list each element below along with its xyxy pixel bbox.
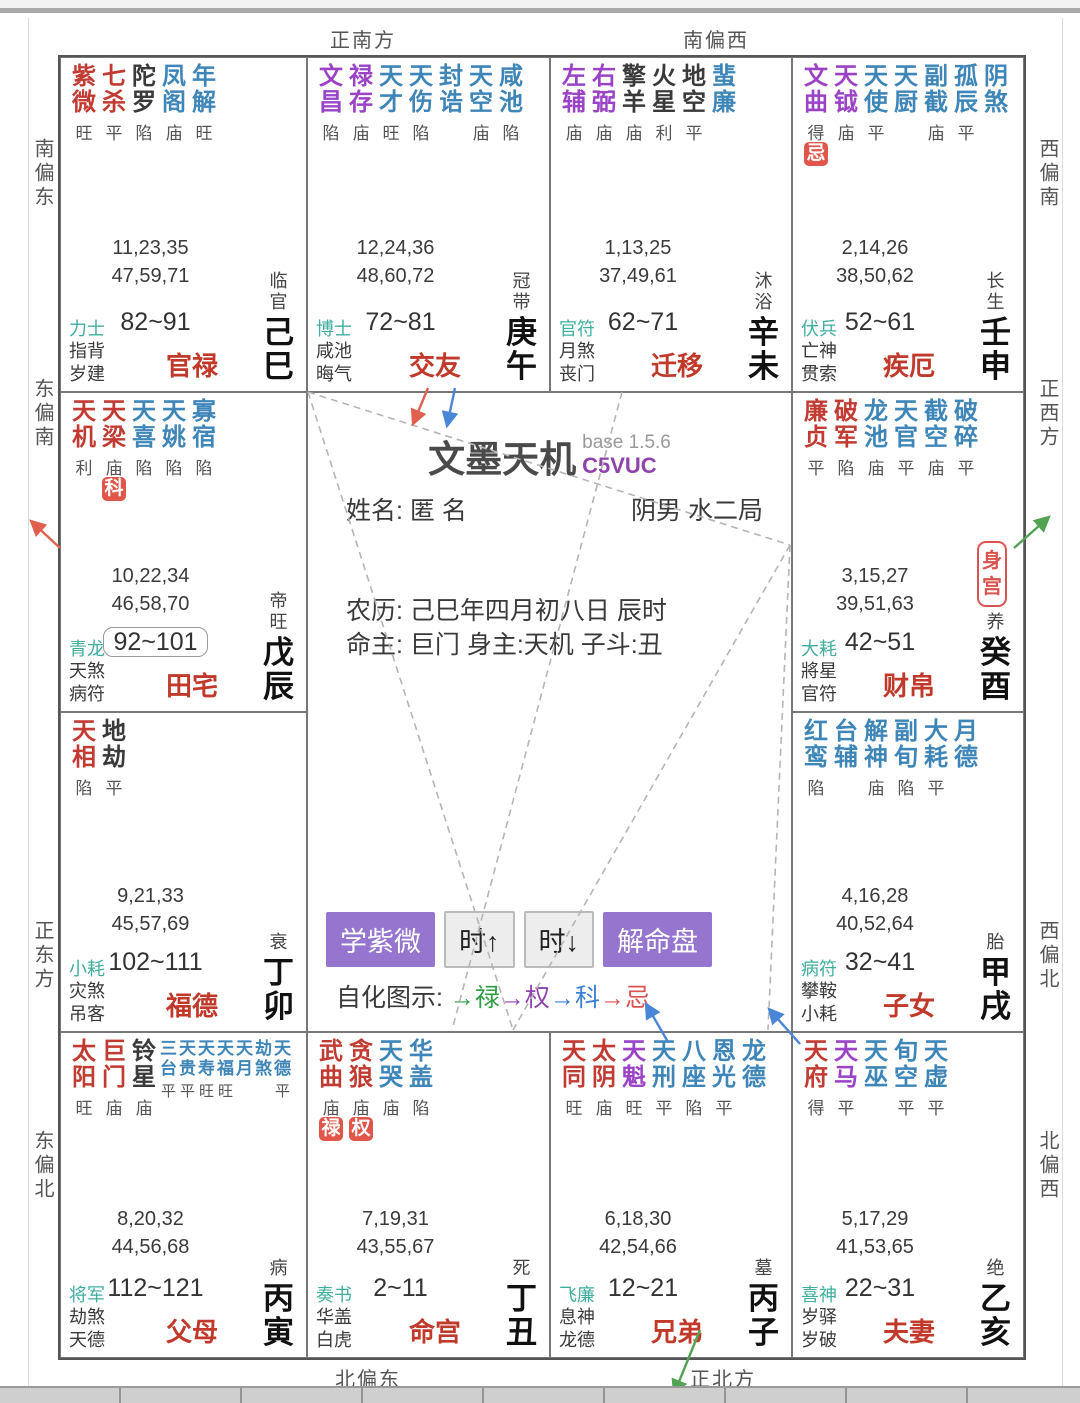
star-char: 廉 [712, 90, 736, 116]
decade-range[interactable]: 102~111 [91, 948, 220, 977]
star-list: 武曲庙禄贪狼庙权天哭庙华盖陷 [316, 1039, 436, 1141]
star-char: 红 [804, 719, 828, 745]
interpret-chart-button[interactable]: 解命盘 [603, 912, 712, 967]
star: 天姚陷 [159, 399, 189, 474]
star: 文昌陷 [316, 64, 346, 139]
star-brightness: 旺 [383, 119, 400, 139]
stem-branch: 丁卯 [263, 956, 294, 1025]
star-char: 天 [864, 1039, 888, 1065]
decade-range[interactable]: 112~121 [91, 1274, 220, 1303]
star-brightness [994, 119, 999, 139]
star-list: 天机利天梁庙科天喜陷天姚陷寡宿陷 [69, 399, 219, 501]
palace-guanlu[interactable]: 紫微旺七杀平陀罗陷凤阁庙年解旺11,23,3547,59,71力士指背岁建82~… [60, 57, 307, 392]
star-brightness: 利 [656, 119, 673, 139]
jiangqian-label: 亡神 [801, 340, 837, 363]
app-title: 文墨天机 [428, 439, 576, 480]
legend-ji: 忌 [625, 984, 650, 1012]
star-char: 天 [469, 64, 493, 90]
star-list: 廉贞平破军陷龙池庙天官平截空庙破碎平 [801, 399, 981, 474]
palace-zinv[interactable]: 红鸾陷台辅 解神庙副旬陷大耗平月德 4,16,2840,52,64病符攀鞍小耗3… [792, 712, 1024, 1032]
stage-branch: 养癸酉 [980, 612, 1011, 705]
star: 截空庙 [921, 399, 951, 474]
star-char: 机 [72, 425, 96, 451]
decade-range[interactable]: 2~11 [338, 1274, 463, 1303]
star-char: 武 [319, 1039, 343, 1065]
stem-branch: 丁丑 [506, 1282, 537, 1351]
star: 太阴庙 [589, 1039, 619, 1114]
star-char: 廉 [804, 399, 828, 425]
star-brightness: 平 [656, 1094, 673, 1114]
jiangqian-label: 天煞 [69, 660, 105, 683]
star-char: 德 [954, 745, 978, 771]
stage-branch: 绝乙亥 [980, 1258, 1011, 1351]
star-list: 红鸾陷台辅 解神庙副旬陷大耗平月德 [801, 719, 981, 794]
star-char: 天 [924, 1039, 948, 1065]
palace-qianyi[interactable]: 左辅庙右弼庙擎羊庙火星利地空平蜚廉 1,13,2537,49,61官符月煞丧门6… [550, 57, 792, 392]
gender-bureau: 阴男 水二局 [631, 491, 763, 527]
star-list: 文昌陷禄存庙天才旺天伤陷封诰 天空庙咸池陷 [316, 64, 526, 139]
star-brightness: 旺 [76, 1094, 93, 1114]
star-brightness: 平 [686, 119, 703, 139]
star: 劫煞 [254, 1039, 273, 1097]
life-stage: 绝 [987, 1258, 1005, 1279]
star-char: 台 [160, 1059, 177, 1079]
decade-range[interactable]: 82~91 [91, 308, 220, 337]
star-brightness: 陷 [166, 454, 183, 474]
star-brightness: 庙 [626, 119, 643, 139]
star-brightness: 旺 [76, 119, 93, 139]
star-char: 星 [132, 1065, 156, 1091]
star: 地空平 [679, 64, 709, 139]
star-list: 左辅庙右弼庙擎羊庙火星利地空平蜚廉 [559, 64, 739, 139]
star-brightness: 庙 [928, 119, 945, 139]
star: 解神庙 [861, 719, 891, 794]
star-char: 星 [652, 90, 676, 116]
stem-branch: 戊辰 [263, 636, 294, 705]
star: 天虚平 [921, 1039, 951, 1114]
star-list: 天同旺太阴庙天魁旺天刑平八座陷恩光平龙德 [559, 1039, 769, 1114]
star-char: 咸 [499, 64, 523, 90]
star-char: 池 [499, 90, 523, 116]
stem-branch: 癸酉 [980, 636, 1011, 705]
star-brightness: 庙 [838, 119, 855, 139]
decade-range[interactable]: 72~81 [338, 308, 463, 337]
star-char: 天 [864, 64, 888, 90]
star-char: 火 [652, 64, 676, 90]
stage-branch: 帝旺戊辰 [263, 591, 294, 705]
star: 太阳旺 [69, 1039, 99, 1114]
life-stage: 衰 [270, 932, 288, 953]
stage-branch: 衰丁卯 [263, 932, 294, 1025]
star-brightness: 庙 [868, 454, 885, 474]
star-char: 天 [804, 1039, 828, 1065]
jiangqian-label: 息神 [559, 1306, 595, 1329]
star-brightness: 陷 [686, 1094, 703, 1114]
star: 寡宿陷 [189, 399, 219, 474]
stage-branch: 长生壬申 [980, 271, 1011, 385]
suiqian-label: 病符 [69, 683, 105, 706]
decade-range[interactable]: 22~31 [823, 1274, 937, 1303]
star-char: 贪 [349, 1039, 373, 1065]
star-char: 昌 [319, 90, 343, 116]
star-char: 德 [274, 1059, 291, 1079]
flow-year-numbers: 5,17,2941,53,65 [793, 1205, 957, 1261]
star: 凤阁庙 [159, 64, 189, 139]
star-brightness: 平 [275, 1080, 290, 1097]
legend-quan: 权 [525, 984, 550, 1012]
star: 擎羊庙 [619, 64, 649, 139]
star-char: 巨 [102, 1039, 126, 1065]
flow-year-numbers: 3,15,2739,51,63 [793, 562, 957, 618]
star-char: 禄 [349, 64, 373, 90]
star-char: 马 [834, 1065, 858, 1091]
star-char: 空 [469, 90, 493, 116]
star: 咸池陷 [496, 64, 526, 139]
star-char: 同 [562, 1065, 586, 1091]
star: 天贵平 [178, 1039, 197, 1097]
star: 三台平 [159, 1039, 178, 1097]
star-char: 地 [682, 64, 706, 90]
star: 红鸾陷 [801, 719, 831, 794]
star-brightness: 庙 [353, 1094, 370, 1114]
star-char: 年 [192, 64, 216, 90]
star-char: 解 [192, 90, 216, 116]
star-brightness: 旺 [196, 119, 213, 139]
star-char: 蜚 [712, 64, 736, 90]
star: 天钺庙 [831, 64, 861, 139]
star-brightness: 庙 [166, 119, 183, 139]
dir-left-3: 正东方 [28, 920, 57, 992]
jiangqian-label: 华盖 [316, 1306, 352, 1329]
star-brightness: 庙 [106, 1094, 123, 1114]
jiangqian-label: 岁驿 [801, 1306, 837, 1329]
star-brightness [752, 1094, 757, 1114]
star-char: 劫 [102, 745, 126, 771]
star-char: 凤 [162, 64, 186, 90]
life-stage: 墓 [755, 1258, 773, 1279]
star-brightness: 陷 [808, 774, 825, 794]
stage-branch: 冠带庚午 [506, 271, 537, 385]
star-char: 光 [712, 1065, 736, 1091]
star: 天机利 [69, 399, 99, 474]
suiqian-label: 贯索 [801, 363, 837, 386]
flow-year-numbers: 9,21,3345,57,69 [61, 882, 240, 938]
life-stage: 养 [987, 612, 1005, 633]
star-char: 天 [834, 1039, 858, 1065]
star-char: 阴 [984, 64, 1008, 90]
stage-branch: 墓丙子 [748, 1258, 779, 1351]
life-stage: 临官 [270, 271, 288, 312]
star-list: 天府得天马平天巫 旬空平天虚平 [801, 1039, 951, 1114]
star-brightness: 陷 [136, 454, 153, 474]
suiqian-label: 岁破 [801, 1329, 837, 1352]
star-char: 旬 [894, 1039, 918, 1065]
stage-branch: 病丙寅 [263, 1258, 294, 1351]
star-brightness: 庙 [383, 1094, 400, 1114]
star-brightness: 平 [161, 1080, 176, 1097]
palace-caibo[interactable]: 廉贞平破军陷龙池庙天官平截空庙破碎平3,15,2739,51,63大耗將星官符4… [792, 392, 1024, 712]
legend-arrow-ke: → [550, 984, 575, 1012]
star-char: 厨 [894, 90, 918, 116]
star: 左辅庙 [559, 64, 589, 139]
star: 副截庙 [921, 64, 951, 139]
star-brightness: 庙 [136, 1094, 153, 1114]
palace-name: 福德 [166, 986, 218, 1023]
star-brightness: 陷 [413, 1094, 430, 1114]
palace-fumu[interactable]: 太阳旺巨门庙铃星庙三台平天贵平天寿旺天福旺天月 劫煞 天德平8,20,3244,… [60, 1032, 307, 1358]
palace-tianzhai[interactable]: 天机利天梁庙科天喜陷天姚陷寡宿陷10,22,3446,58,70青龙天煞病符92… [60, 392, 307, 712]
decade-range[interactable]: 42~51 [823, 628, 937, 657]
flow-year-numbers: 4,16,2840,52,64 [793, 882, 957, 938]
suiqian-label: 白虎 [316, 1329, 352, 1352]
star-char: 副 [894, 719, 918, 745]
palace-jiaoyou[interactable]: 文昌陷禄存庙天才旺天伤陷封诰 天空庙咸池陷12,24,3648,60,72博士咸… [307, 57, 550, 392]
palace-jie[interactable]: 文曲得忌天钺庙天使平天厨 副截庙孤辰平阴煞 2,14,2638,50,62伏兵亡… [792, 57, 1024, 392]
transform-badge: 忌 [804, 142, 827, 167]
star: 封诰 [436, 64, 466, 139]
star-char: 天 [102, 399, 126, 425]
star: 天月 [235, 1039, 254, 1097]
star-brightness: 平 [868, 119, 885, 139]
star: 破军陷 [831, 399, 861, 474]
star: 副旬陷 [891, 719, 921, 794]
palace-ming[interactable]: 武曲庙禄贪狼庙权天哭庙华盖陷7,19,3143,55,67奏书华盖白虎2~11命… [307, 1032, 550, 1358]
star: 天哭庙 [376, 1039, 406, 1114]
star-char: 天 [562, 1039, 586, 1065]
dir-left-4: 东偏北 [28, 1130, 57, 1202]
jiangqian-label: 劫煞 [69, 1306, 105, 1329]
star-char: 破 [954, 399, 978, 425]
star-brightness [844, 774, 849, 794]
star-brightness: 平 [838, 1094, 855, 1114]
star-brightness: 旺 [199, 1080, 214, 1097]
flow-year-numbers: 11,23,3547,59,71 [61, 234, 240, 290]
stage-branch: 死丁丑 [506, 1258, 537, 1351]
star-char: 罗 [132, 90, 156, 116]
decade-range[interactable]: 52~61 [823, 308, 937, 337]
dir-left-2: 东偏南 [28, 378, 57, 450]
transform-badge: 科 [102, 477, 125, 502]
star-char: 三 [160, 1039, 177, 1059]
stem-branch: 丙寅 [263, 1282, 294, 1351]
star-char: 相 [72, 745, 96, 771]
star-brightness: 庙 [323, 1094, 340, 1114]
hour-down-button[interactable]: 时↓ [524, 911, 595, 968]
dir-right-2: 正西方 [1033, 378, 1062, 450]
star-char: 存 [349, 90, 373, 116]
suiqian-label: 岁建 [69, 363, 105, 386]
star-char: 天 [379, 64, 403, 90]
star-brightness: 陷 [136, 119, 153, 139]
life-stage: 病 [270, 1258, 288, 1279]
transform-arrow-red-left [31, 521, 60, 548]
star-char: 盖 [409, 1065, 433, 1091]
star: 天伤陷 [406, 64, 436, 139]
decade-range[interactable]: 92~101 [91, 628, 220, 657]
star-char: 诰 [439, 90, 463, 116]
decade-range[interactable]: 62~71 [581, 308, 705, 337]
jiangqian-label: 指背 [69, 340, 105, 363]
star-char: 天 [198, 1039, 215, 1059]
toolbar: 学紫微 时↑ 时↓ 解命盘 [326, 911, 712, 968]
star: 天才旺 [376, 64, 406, 139]
star-brightness [874, 1094, 879, 1114]
app-title-row: 文墨天机base 1.5.6C5VUC [308, 429, 791, 483]
star-char: 阳 [72, 1065, 96, 1091]
star-char: 使 [864, 90, 888, 116]
star-char: 曲 [804, 90, 828, 116]
name-value: 匿 名 [410, 497, 467, 525]
star: 八座陷 [679, 1039, 709, 1114]
star-brightness: 平 [898, 454, 915, 474]
star: 天刑平 [649, 1039, 679, 1114]
star: 文曲得忌 [801, 64, 831, 166]
star-char: 天 [217, 1039, 234, 1059]
star-char: 阴 [592, 1065, 616, 1091]
star-brightness: 庙 [596, 119, 613, 139]
legend-lu: 禄 [475, 984, 500, 1012]
star-char: 辅 [562, 90, 586, 116]
star-char: 劫 [255, 1039, 272, 1059]
star-brightness: 庙 [473, 119, 490, 139]
life-stage: 死 [513, 1258, 531, 1279]
star-char: 阁 [162, 90, 186, 116]
suiqian-label: 晦气 [316, 363, 352, 386]
star-char: 羊 [622, 90, 646, 116]
star: 年解旺 [189, 64, 219, 139]
decade-range[interactable]: 32~41 [823, 948, 937, 977]
suiqian-label: 吊客 [69, 1003, 105, 1026]
star-char: 寡 [192, 399, 216, 425]
star-char: 台 [834, 719, 858, 745]
star: 蜚廉 [709, 64, 739, 139]
jiangqian-label: 攀鞍 [801, 980, 837, 1003]
star-char: 左 [562, 64, 586, 90]
star-brightness: 平 [106, 774, 123, 794]
legend-arrow-lu: → [450, 984, 475, 1012]
star-char: 德 [742, 1065, 766, 1091]
palace-grid: 紫微旺七杀平陀罗陷凤阁庙年解旺11,23,3547,59,71力士指背岁建82~… [60, 57, 1024, 1358]
palace-name: 子女 [883, 986, 935, 1023]
star-brightness: 平 [808, 454, 825, 474]
star-char: 姚 [162, 425, 186, 451]
dir-left-1: 南偏东 [28, 138, 57, 210]
star-char: 哭 [379, 1065, 403, 1091]
lunar-date: 农历: 己巳年四月初八日 辰时 [346, 591, 667, 627]
dir-right-3: 西偏北 [1033, 920, 1062, 992]
star-char: 天 [622, 1039, 646, 1065]
life-stage: 长生 [987, 271, 1005, 312]
star: 禄存庙 [346, 64, 376, 139]
legend-arrow-ji: → [600, 984, 625, 1012]
self-transform-legend: 自化图示: →禄→权→科→忌 [336, 978, 650, 1014]
star-list: 文曲得忌天钺庙天使平天厨 副截庙孤辰平阴煞 [801, 64, 1011, 166]
decade-range[interactable]: 12~21 [581, 1274, 705, 1303]
palace-name: 疾厄 [883, 346, 935, 383]
star-char: 铃 [132, 1039, 156, 1065]
star: 孤辰平 [951, 64, 981, 139]
star: 天空庙 [466, 64, 496, 139]
flow-year-numbers: 10,22,3446,58,70 [61, 562, 240, 618]
suiqian-label: 天德 [69, 1329, 105, 1352]
star: 天府得 [801, 1039, 831, 1114]
star: 巨门庙 [99, 1039, 129, 1114]
palace-xiongdi[interactable]: 天同旺太阴庙天魁旺天刑平八座陷恩光平龙德 6,18,3042,54,66飞廉息神… [550, 1032, 792, 1358]
star-char: 神 [864, 745, 888, 771]
star-brightness: 平 [898, 1094, 915, 1114]
star-char: 擎 [622, 64, 646, 90]
stem-branch: 庚午 [506, 316, 537, 385]
star: 大耗平 [921, 719, 951, 794]
dir-south-west: 南偏西 [683, 24, 749, 53]
suiqian-label: 小耗 [801, 1003, 837, 1026]
star-list: 天相陷地劫平 [69, 719, 129, 794]
star-brightness: 陷 [838, 454, 855, 474]
ziwei-chart-page: { "colors": { "red":"#c23b33", "purple":… [0, 0, 1080, 1403]
star-brightness: 平 [106, 119, 123, 139]
palace-fuqi[interactable]: 天府得天马平天巫 旬空平天虚平5,17,2941,53,65喜神岁驿岁破22~3… [792, 1032, 1024, 1358]
star-brightness [722, 119, 727, 139]
star-brightness: 陷 [413, 119, 430, 139]
star: 右弼庙 [589, 64, 619, 139]
palace-name: 父母 [166, 1312, 218, 1349]
top-divider-bar [0, 0, 1080, 13]
star-char: 钺 [834, 90, 858, 116]
star: 天寿旺 [197, 1039, 216, 1097]
star: 阴煞 [981, 64, 1011, 139]
jiangqian-label: 灾煞 [69, 980, 105, 1003]
star-char: 鸾 [804, 745, 828, 771]
hour-up-button[interactable]: 时↑ [444, 911, 515, 968]
stem-branch: 甲戌 [980, 956, 1011, 1025]
palace-fude[interactable]: 天相陷地劫平9,21,3345,57,69小耗灾煞吊客102~111福德衰丁卯 [60, 712, 307, 1032]
stage-branch: 沐浴辛未 [748, 271, 779, 385]
palace-name: 夫妻 [883, 1312, 935, 1349]
star-char: 刑 [652, 1065, 676, 1091]
star: 廉贞平 [801, 399, 831, 474]
star-char: 巫 [864, 1065, 888, 1091]
star-char: 龙 [864, 399, 888, 425]
flow-year-numbers: 6,18,3042,54,66 [551, 1205, 725, 1261]
star-char: 碎 [954, 425, 978, 451]
star-char: 空 [894, 1065, 918, 1091]
star-char: 陀 [132, 64, 156, 90]
jiangqian-label: 咸池 [316, 340, 352, 363]
star-char: 天 [162, 399, 186, 425]
star-char: 官 [894, 425, 918, 451]
flow-year-numbers: 12,24,3648,60,72 [308, 234, 483, 290]
star-char: 煞 [984, 90, 1008, 116]
star-char: 天 [409, 64, 433, 90]
stem-branch: 壬申 [980, 316, 1011, 385]
star-char: 解 [864, 719, 888, 745]
star-brightness: 旺 [626, 1094, 643, 1114]
star: 贪狼庙权 [346, 1039, 376, 1141]
star-brightness: 平 [958, 119, 975, 139]
chart-center-panel: 文墨天机base 1.5.6C5VUC 姓名: 匿 名 阴男 水二局 农历: 己… [307, 392, 792, 1032]
star-brightness: 庙 [566, 119, 583, 139]
star: 天魁旺 [619, 1039, 649, 1114]
star-char: 寿 [198, 1059, 215, 1079]
star-brightness: 庙 [353, 119, 370, 139]
star-brightness: 得 [808, 119, 825, 139]
star-char: 截 [924, 399, 948, 425]
star: 火星利 [649, 64, 679, 139]
star: 紫微旺 [69, 64, 99, 139]
learn-ziwei-button[interactable]: 学紫微 [326, 912, 435, 967]
star-char: 地 [102, 719, 126, 745]
palace-name: 迁移 [651, 346, 703, 383]
